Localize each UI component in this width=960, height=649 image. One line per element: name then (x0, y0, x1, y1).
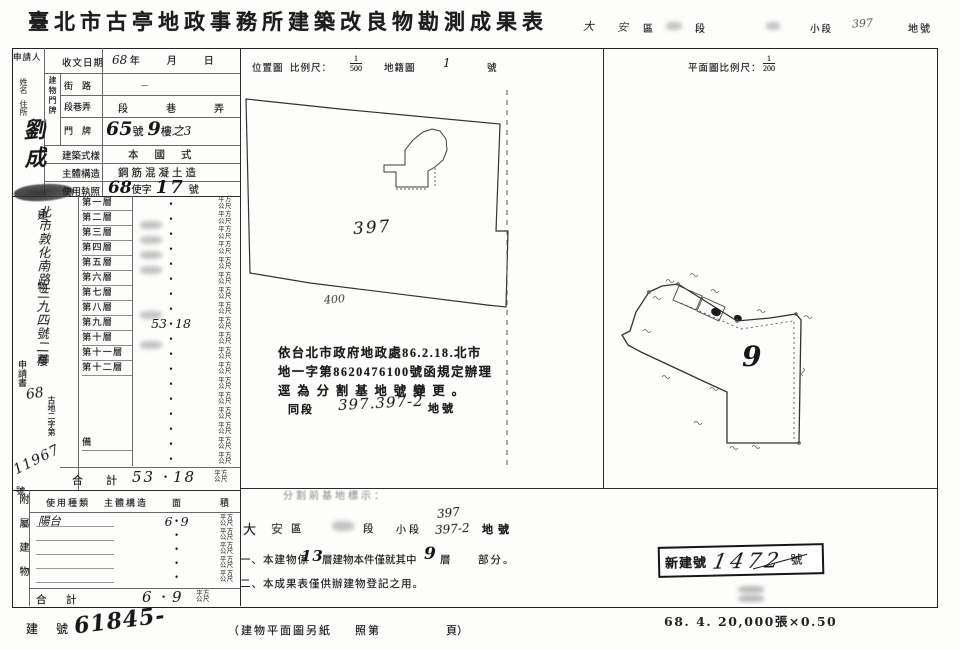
plate-no-label: 號 (132, 126, 143, 138)
received-date-value: 68 年 月 日 (112, 52, 214, 67)
col-line (102, 48, 103, 196)
building-no-hand: 61845- (73, 603, 167, 640)
unit-line2: 公尺 (218, 428, 232, 435)
decimal-dot: • (167, 334, 175, 344)
floor-area-value: • (132, 409, 212, 419)
annex-area-value: • (138, 544, 216, 554)
floor-label (82, 453, 132, 466)
decimal-dot: • (167, 229, 175, 239)
area-unit: 平方公尺 (216, 571, 238, 583)
decimal-dot: • (167, 394, 175, 404)
reg-note-lot-suffix: 地號 (428, 400, 456, 416)
decimal-dot: • (173, 516, 181, 526)
annex-total-right: 9 (172, 588, 182, 606)
decimal-dot: • (173, 572, 181, 582)
unit-line2: 公尺 (218, 458, 232, 465)
decimal-dot: • (167, 274, 175, 284)
decimal-dot: • (164, 472, 167, 482)
area-unit: 平方公尺 (212, 258, 238, 270)
decimal-dot: • (167, 244, 175, 254)
month-label: 月 (167, 56, 177, 67)
scale-numerator: 1 (763, 55, 775, 63)
annex-kind (34, 529, 138, 541)
license-value: 68使字 17 號 (108, 177, 199, 198)
application-doc-label: 申請書 (16, 360, 29, 387)
license-word: 使字 (132, 185, 152, 196)
floor-label: 第十一層 (82, 347, 132, 361)
reg-note-line-1: 依台北市政府地政處86.2.18.北市 (278, 343, 482, 361)
area-unit: 平方公尺 (212, 242, 238, 254)
style-value: 本國式 (128, 147, 208, 162)
decimal-dot: • (173, 544, 181, 554)
subsection-label: 小段 (810, 21, 833, 35)
building-no-label-1: 建 (26, 620, 38, 637)
area-unit: 平方公尺 (212, 438, 238, 450)
annex-vertical-label: 附屬建物 (15, 494, 30, 595)
unit-line2: 公尺 (218, 338, 232, 345)
lane-value: 段 巷 弄 (118, 100, 238, 115)
area-unit: 平方公尺 (212, 288, 238, 300)
new-building-no-stamp: 新建號 1472 號 (658, 543, 825, 578)
unit-line2: 公尺 (220, 562, 234, 569)
area-vertical-label: 建物面積 (66, 210, 78, 492)
unit-line2: 公尺 (220, 576, 234, 583)
row-underline (36, 554, 114, 555)
map-lot-number: 397 (352, 217, 392, 240)
floor-row-7: 第七層•平方公尺 (82, 286, 238, 301)
map-header-title: 位置圖 (252, 60, 284, 74)
addr-line-d2: 安 (271, 520, 283, 537)
annex-kind (34, 557, 138, 569)
unit-line2: 公尺 (218, 218, 232, 225)
floor-area-value: • (132, 289, 212, 299)
annex-kind: 陽台 (34, 515, 138, 527)
received-date-label: 收文日期 (62, 55, 104, 69)
area-vertical-char: 建物面積 (66, 210, 78, 495)
plan-dotted-lines (681, 303, 794, 440)
page-title: 臺北市古亭地政事務所建築改良物勘測成果表 (28, 6, 548, 36)
structure-label: 主體構造 (62, 166, 100, 180)
illegible-mark (332, 521, 354, 531)
floor-area-value: • (132, 439, 212, 449)
building-no-label-2: 號 (56, 620, 68, 637)
door-plate-vertical-label: 建物門牌 (47, 76, 58, 116)
floor-row-11: 第十一層•平方公尺 (82, 346, 238, 361)
floor-area-value: • (132, 334, 212, 344)
annex-header-structure: 主體構造 (104, 496, 148, 509)
unit-line2: 公尺 (218, 263, 232, 270)
row-underline (36, 582, 114, 583)
floor-label: 第八層 (82, 302, 132, 316)
floor-label: 第一層 (82, 197, 132, 211)
area-unit: 平方公尺 (212, 273, 238, 285)
row-line (44, 73, 240, 74)
floor-area-value: • (132, 454, 212, 464)
map-header-scale-label: 比例尺： (290, 60, 332, 74)
print-code: 68. 4. 20,000張×0.50 (664, 611, 837, 630)
floor-row-13: •平方公尺 (82, 377, 238, 392)
floor-label (82, 378, 132, 391)
balcony-rect-2 (697, 297, 725, 321)
unit-line2: 公尺 (218, 368, 232, 375)
survey-diagrams (240, 88, 938, 488)
addr-line-section: 段 (363, 521, 374, 536)
col-line (60, 73, 61, 145)
total-value-left: 53 (132, 468, 155, 486)
unit-line2: 公尺 (218, 443, 232, 450)
note-1-p3: 層 (440, 552, 451, 567)
unit-line2: 公尺 (214, 476, 228, 483)
license-suffix: 號 (189, 185, 199, 196)
illegible-mark (766, 22, 780, 30)
floor-plan-outline (622, 284, 801, 443)
unit-line2: 公尺 (218, 353, 232, 360)
floor-area-value: • (132, 199, 212, 209)
map-adjacent-lot-number: 400 (323, 292, 345, 307)
floor-row-15: •平方公尺 (82, 407, 238, 422)
applicant-label: 申請人 (13, 51, 42, 63)
annex-area-left: 6 (138, 514, 173, 529)
unit-line2: 公尺 (218, 413, 232, 420)
row-line (44, 145, 240, 146)
unit-line2: 公尺 (196, 596, 210, 603)
decimal-dot: • (167, 379, 175, 389)
note-1-p1: 一、本建物係 (240, 552, 309, 567)
received-year-hand: 68 (112, 53, 127, 67)
annex-area-value: • (138, 558, 216, 568)
district-hand-1: 大 (583, 18, 594, 34)
floor-row-12: 第十二層•平方公尺 (82, 362, 238, 377)
annex-header-area-2: 積 (220, 496, 229, 509)
illegible-mark (140, 266, 162, 274)
total-label-1: 合 (72, 472, 83, 488)
illegible-mark (140, 341, 162, 349)
annex-kind (34, 571, 138, 583)
annex-header-area-1: 面 (172, 496, 181, 509)
plate-value: 65號 9樓之3 (106, 118, 191, 140)
stamp-suffix: 號 (790, 551, 802, 568)
floor-label: 第九層 (82, 317, 132, 331)
floor-label: 第二層 (82, 212, 132, 226)
annex-header-kind: 使用種類 (46, 496, 90, 509)
decimal-dot: • (167, 289, 175, 299)
floor-area-value: • (132, 244, 212, 254)
addr-line-lot-hand-1: 397 (436, 505, 460, 521)
floor-row-10: 第十層•平方公尺 (82, 331, 238, 346)
day-label: 日 (204, 56, 214, 67)
floor-label: 第七層 (82, 287, 132, 301)
annex-vertical-text: 附屬建物 (15, 494, 30, 590)
floor-area-value: • (132, 259, 212, 269)
note-1-p4: 部分。 (478, 552, 516, 567)
area-unit: 平方公尺 (208, 471, 234, 483)
floor-area-value: • (132, 214, 212, 224)
floor-area-right: 18 (175, 316, 210, 331)
cadastral-map-label: 地籍圖 (384, 60, 416, 74)
reg-note-line-2: 地一字第8620476100號函規定辦理 (278, 362, 492, 380)
floor-area-left: 53 (132, 316, 167, 331)
floor-row-8: 第八層•平方公尺 (82, 301, 238, 316)
floor-area-value: • (132, 274, 212, 284)
floor-row-16: •平方公尺 (82, 422, 238, 437)
street-value: － (140, 79, 149, 92)
plate-sub-hand: 之3 (172, 124, 192, 138)
unit-line2: 公尺 (218, 398, 232, 405)
plan-note-2: 照第 (355, 622, 381, 638)
row-line (12, 490, 240, 491)
illegible-mark (140, 236, 162, 244)
annex-area-value: • (138, 530, 216, 540)
plan-scale-fraction: 1 200 (763, 55, 775, 73)
area-unit: 平方公尺 (212, 318, 238, 330)
decimal-dot: • (173, 558, 181, 568)
row-underline (36, 526, 114, 527)
unit-line2: 公尺 (218, 278, 232, 285)
row-underline (36, 568, 114, 569)
scale-denominator: 500 (350, 63, 362, 73)
floor-label: 第三層 (82, 227, 132, 241)
floor-area-value: • (132, 229, 212, 239)
section-label: 段 (695, 20, 705, 35)
decimal-dot: • (162, 592, 165, 602)
illegible-mark (666, 22, 682, 30)
decimal-dot: • (167, 259, 175, 269)
plan-note-3: 頁） (446, 622, 468, 638)
stamp-prefix: 新建號 (665, 552, 707, 572)
area-unit: 平方公尺 (212, 378, 238, 390)
floor-area-value: • (132, 424, 212, 434)
area-unit: 平方公尺 (212, 197, 238, 209)
unit-line2: 公尺 (218, 323, 232, 330)
area-unit: 平方公尺 (212, 348, 238, 360)
lot-number-hand: 397 (852, 16, 874, 30)
floor-row-5: 第五層•平方公尺 (82, 256, 238, 271)
area-unit: 平方公尺 (216, 529, 238, 541)
cadastral-map-no-suffix: 號 (487, 60, 497, 74)
floor-area-value: • (132, 304, 212, 314)
area-unit: 平方公尺 (212, 363, 238, 375)
plate-label: 門 牌 (64, 124, 91, 137)
unit-line2: 公尺 (218, 308, 232, 315)
floor-row-3: 第三層•平方公尺 (82, 226, 238, 241)
street-label: 街 路 (64, 79, 91, 92)
floor-area-table: 第一層•平方公尺第二層•平方公尺第三層•平方公尺第四層•平方公尺第五層•平方公尺… (82, 196, 238, 467)
decimal-dot: • (167, 319, 175, 329)
addr-line-d1: 大 (243, 519, 256, 538)
illegible-mark (140, 251, 162, 259)
plate-no-hand: 65 (106, 118, 132, 140)
stamp-number-hand: 1472 (711, 548, 785, 574)
addr-line-district: 區 (291, 521, 302, 536)
lane-label: 段巷弄 (64, 100, 91, 113)
decimal-dot: • (167, 454, 175, 464)
unit-line2: 公尺 (218, 203, 232, 210)
floor-total-row: 合 計 53 • 18 平方公尺 (60, 468, 238, 488)
decimal-dot: • (167, 304, 175, 314)
plan-floor-number: 9 (742, 340, 761, 373)
building-footprint-dotted (396, 168, 435, 189)
illegible-mark (738, 595, 764, 602)
floor-row-18: •平方公尺 (82, 452, 238, 467)
row-line (29, 588, 240, 589)
row-underline (36, 540, 114, 541)
plate-floor-hand: 9 (147, 118, 160, 140)
lot-label: 地號 (908, 20, 932, 35)
unit-line2: 公尺 (220, 520, 234, 527)
plan-note-1: （建物平面圖另紙 (228, 622, 332, 638)
illegible-mark (738, 586, 764, 593)
unit-line2: 公尺 (218, 248, 232, 255)
shaft-mark (710, 307, 722, 318)
floor-row-1: 第一層•平方公尺 (82, 196, 238, 211)
floor-label: 備 (82, 437, 132, 451)
floor-row-2: 第二層•平方公尺 (82, 211, 238, 226)
district-label: 區 (643, 20, 653, 35)
col-line (78, 196, 79, 490)
area-unit: 平方公尺 (212, 212, 238, 224)
note-1-p2: 層建物本件僅就其中 (322, 552, 417, 567)
area-unit: 平方公尺 (216, 557, 238, 569)
area-unit: 平方公尺 (212, 333, 238, 345)
unit-line2: 公尺 (220, 534, 234, 541)
reg-note-same-section: 同段 (288, 401, 314, 417)
parcel-outline (246, 99, 508, 307)
floor-area-value: • (132, 379, 212, 389)
pre-split-note: 分割前基地標示： (283, 487, 387, 502)
decimal-dot: • (167, 214, 175, 224)
floor-label: 第六層 (82, 272, 132, 286)
area-unit: 平方公尺 (212, 393, 238, 405)
floor-area-value: • (132, 364, 212, 374)
floor-area-value: • (132, 349, 212, 359)
note-1-hand-floors: 13 (301, 547, 324, 565)
area-unit: 平方公尺 (216, 543, 238, 555)
floor-row-14: •平方公尺 (82, 392, 238, 407)
decimal-dot: • (167, 439, 175, 449)
annex-total-label-2: 計 (66, 592, 77, 607)
scale-denominator: 200 (763, 63, 775, 73)
plan-header-title: 平面圖比例尺： (688, 60, 762, 74)
floor-area-value: • (132, 394, 212, 404)
cadastral-map-no-hand: 1 (443, 56, 451, 70)
decimal-dot: • (167, 364, 175, 374)
annex-kind (34, 543, 138, 555)
row-line (44, 163, 240, 164)
annex-row-5: •平方公尺 (34, 570, 238, 584)
addr-line-subsection: 小段 (396, 521, 422, 536)
floor-label (82, 408, 132, 421)
application-series-label: 古地二字第 (46, 396, 57, 436)
annex-area-value: • (138, 572, 216, 582)
floor-label: 第五層 (82, 257, 132, 271)
decimal-dot: • (167, 349, 175, 359)
floor-label (82, 393, 132, 406)
annex-row-4: •平方公尺 (34, 556, 238, 570)
plate-floor-label: 樓 (161, 126, 172, 138)
area-unit: 平方公尺 (216, 515, 238, 527)
annex-row-1: 陽台6•9平方公尺 (34, 514, 238, 528)
addr-line-lot-label: 地號 (482, 521, 514, 537)
name-label: 姓名 (18, 78, 29, 94)
floor-row-17: 備•平方公尺 (82, 437, 238, 452)
license-no-hand: 17 (156, 177, 185, 198)
note-1-hand-floor: 9 (424, 544, 436, 564)
row-line (60, 95, 240, 96)
annex-area-right: 9 (181, 514, 216, 529)
area-unit: 平方公尺 (212, 408, 238, 420)
license-year-hand: 68 (108, 178, 132, 198)
area-unit: 平方公尺 (212, 303, 238, 315)
floor-label: 第十二層 (82, 362, 132, 376)
style-label: 建築式樣 (62, 148, 100, 162)
floor-row-9: 第九層53•18平方公尺 (82, 316, 238, 331)
area-unit: 平方公尺 (212, 453, 238, 465)
unit-line2: 公尺 (220, 548, 234, 555)
scanned-survey-form: 臺北市古亭地政事務所建築改良物勘測成果表 大 安 區 段 小段 397 地號 申… (0, 0, 960, 649)
decimal-dot: • (167, 424, 175, 434)
annex-total-row: 合 計 6 • 9 平方公尺 (34, 590, 238, 606)
total-value-right: 18 (173, 468, 196, 486)
floor-label: 第四層 (82, 242, 132, 256)
area-unit: 平方公尺 (190, 591, 216, 603)
annex-area-value: 6•9 (138, 514, 216, 529)
decimal-dot: • (173, 530, 181, 540)
area-unit: 平方公尺 (212, 227, 238, 239)
note-2: 二、本成果表僅供辦建物登記之用。 (240, 576, 424, 591)
annex-total-label-1: 合 (36, 592, 47, 607)
scale-numerator: 1 (350, 55, 362, 63)
address-label: 住所 (18, 100, 29, 116)
illegible-mark (140, 221, 162, 229)
addr-line-lot-hand-2: 397-2 (435, 521, 470, 537)
decimal-dot: • (167, 199, 175, 209)
map-scale-fraction: 1 500 (350, 55, 362, 73)
total-label-2: 計 (106, 472, 117, 488)
area-unit: 平方公尺 (212, 423, 238, 435)
balcony-rect-1 (673, 286, 702, 310)
floor-area-value: 53•18 (132, 316, 212, 331)
unit-line2: 公尺 (218, 233, 232, 240)
district-hand-2: 安 (617, 19, 628, 35)
decimal-dot: • (167, 409, 175, 419)
annex-row-3: •平方公尺 (34, 542, 238, 556)
annex-row-2: •平方公尺 (34, 528, 238, 542)
floor-row-4: 第四層•平方公尺 (82, 241, 238, 256)
annex-table: 陽台6•9平方公尺•平方公尺•平方公尺•平方公尺•平方公尺 (34, 514, 238, 584)
year-label: 年 (130, 56, 140, 67)
unit-line2: 公尺 (218, 293, 232, 300)
floor-label (82, 423, 132, 436)
floor-label: 第十層 (82, 332, 132, 346)
applicant-name-hand: 劉成 (16, 117, 50, 174)
unit-line2: 公尺 (218, 383, 232, 390)
floor-row-6: 第六層•平方公尺 (82, 271, 238, 286)
building-footprint (384, 129, 447, 187)
